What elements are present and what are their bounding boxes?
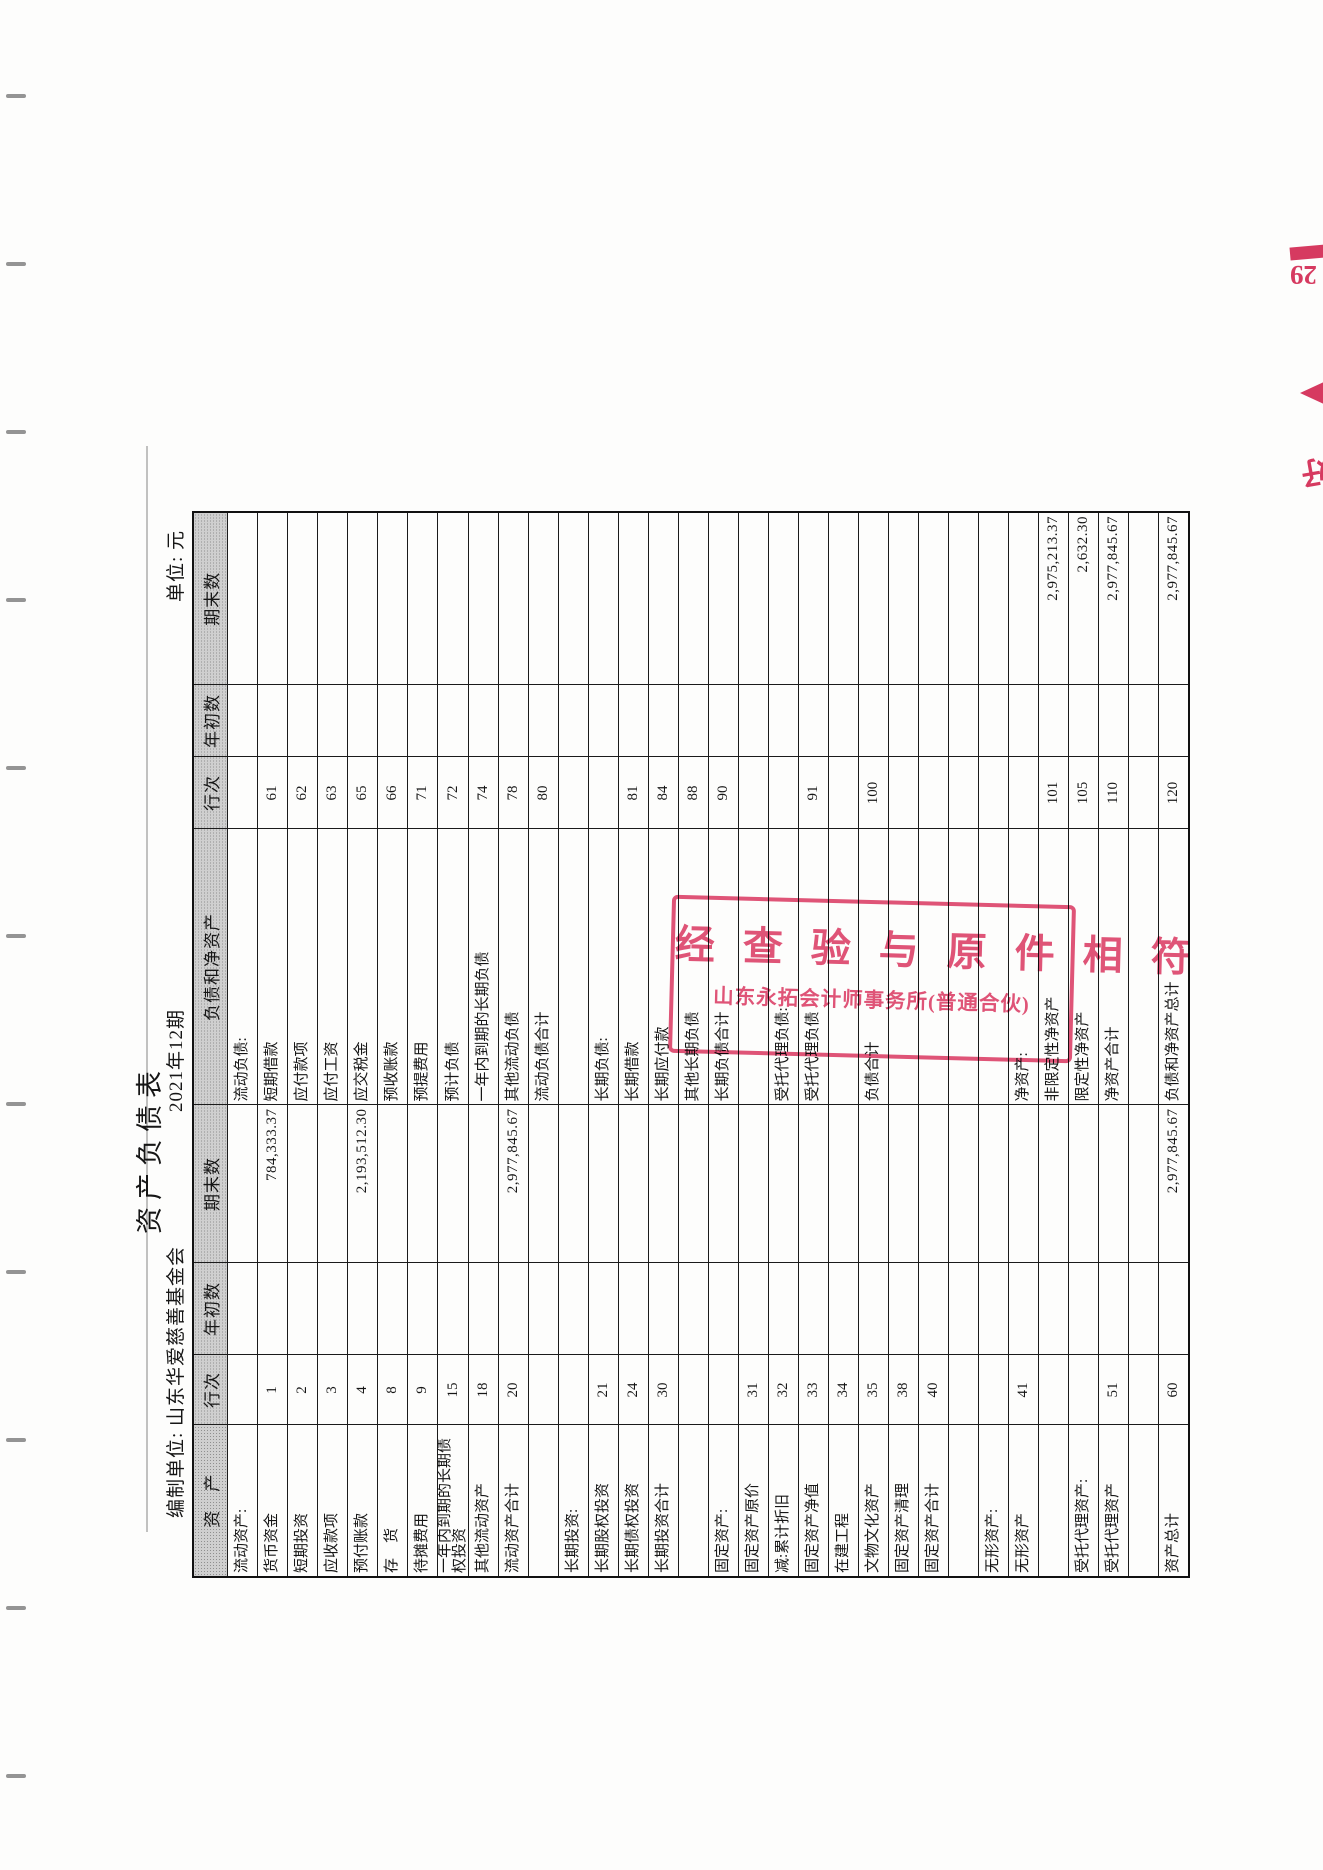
asset-lineno-cell: 24	[619, 1355, 649, 1425]
asset-beginning-cell	[318, 1263, 348, 1355]
asset-ending-cell	[919, 1105, 949, 1263]
liability-ending-cell	[499, 512, 529, 685]
binder-mark	[6, 1102, 26, 1106]
asset-ending-cell	[709, 1105, 739, 1263]
liability-lineno-cell: 63	[318, 757, 348, 829]
liability-lineno-cell: 71	[408, 757, 438, 829]
liability-lineno-cell: 80	[529, 757, 559, 829]
liability-beginning-cell	[889, 685, 919, 757]
liability-lineno-cell: 91	[799, 757, 829, 829]
asset-name-cell: 固定资产清理	[889, 1425, 919, 1577]
liability-lineno-cell	[228, 757, 258, 829]
asset-ending-cell	[559, 1105, 589, 1263]
asset-beginning-cell	[408, 1263, 438, 1355]
stamp-text-verified: 经 查 验 与 原 件 相 符	[674, 912, 1071, 980]
asset-beginning-cell	[889, 1263, 919, 1355]
asset-lineno-cell	[1129, 1355, 1159, 1425]
asset-beginning-cell	[499, 1263, 529, 1355]
liability-lineno-cell: 101	[1039, 757, 1069, 829]
asset-beginning-cell	[1069, 1263, 1099, 1355]
asset-ending-cell: 2,977,845.67	[499, 1105, 529, 1263]
asset-beginning-cell	[1009, 1263, 1039, 1355]
liability-name-cell: 长期负债:	[589, 829, 619, 1105]
asset-name-cell: 存 货	[378, 1425, 408, 1577]
header-liability-beginning: 年初数	[193, 685, 228, 757]
liability-beginning-cell	[979, 685, 1009, 757]
liability-beginning-cell	[348, 685, 378, 757]
liability-ending-cell	[679, 512, 709, 685]
header-asset: 资 产	[193, 1425, 228, 1577]
table-row: 流动资产:流动负债:	[228, 512, 258, 1577]
scanned-balance-sheet-page: { "document": { "title": "资产负债表", "org_l…	[0, 0, 1323, 1870]
liability-beginning-cell	[1039, 685, 1069, 757]
asset-lineno-cell: 30	[649, 1355, 679, 1425]
liability-ending-cell	[529, 512, 559, 685]
asset-name-cell: 长期投资:	[559, 1425, 589, 1577]
liability-lineno-cell	[889, 757, 919, 829]
asset-lineno-cell: 34	[829, 1355, 859, 1425]
asset-lineno-cell: 35	[859, 1355, 889, 1425]
asset-name-cell: 货币资金	[258, 1425, 288, 1577]
asset-beginning-cell	[649, 1263, 679, 1355]
asset-lineno-cell: 38	[889, 1355, 919, 1425]
asset-lineno-cell: 8	[378, 1355, 408, 1425]
liability-beginning-cell	[799, 685, 829, 757]
asset-ending-cell	[649, 1105, 679, 1263]
header-asset-ending: 期末数	[193, 1105, 228, 1263]
asset-lineno-cell	[709, 1355, 739, 1425]
table-row: 资产总计602,977,845.67负债和净资产总计1202,977,845.6…	[1159, 512, 1190, 1577]
liability-ending-cell	[1009, 512, 1039, 685]
asset-lineno-cell: 33	[799, 1355, 829, 1425]
liability-lineno-cell: 72	[438, 757, 469, 829]
binder-mark	[6, 766, 26, 770]
asset-ending-cell	[949, 1105, 979, 1263]
asset-name-cell: 固定资产合计	[919, 1425, 949, 1577]
asset-beginning-cell	[529, 1263, 559, 1355]
unit-label: 单位: 元	[161, 530, 188, 602]
asset-ending-cell: 2,977,845.67	[1159, 1105, 1190, 1263]
asset-name-cell: 长期债权投资	[619, 1425, 649, 1577]
asset-name-cell: 待摊费用	[408, 1425, 438, 1577]
liability-ending-cell: 2,975,213.37	[1039, 512, 1069, 685]
liability-ending-cell	[949, 512, 979, 685]
asset-beginning-cell	[1099, 1263, 1129, 1355]
liability-lineno-cell: 65	[348, 757, 378, 829]
liability-beginning-cell	[288, 685, 318, 757]
asset-ending-cell	[1129, 1105, 1159, 1263]
asset-lineno-cell	[979, 1355, 1009, 1425]
asset-ending-cell	[1039, 1105, 1069, 1263]
liability-beginning-cell	[679, 685, 709, 757]
asset-ending-cell	[889, 1105, 919, 1263]
asset-ending-cell	[1009, 1105, 1039, 1263]
table-row: 一年内到期的长期债权投资15预计负债72	[438, 512, 469, 1577]
liability-ending-cell	[829, 512, 859, 685]
liability-lineno-cell: 120	[1159, 757, 1190, 829]
asset-ending-cell	[739, 1105, 769, 1263]
liability-beginning-cell	[919, 685, 949, 757]
asset-ending-cell	[529, 1105, 559, 1263]
liability-beginning-cell	[438, 685, 469, 757]
asset-lineno-cell	[1069, 1355, 1099, 1425]
liability-ending-cell	[619, 512, 649, 685]
liability-ending-cell: 2,632.30	[1069, 512, 1099, 685]
liability-ending-cell	[739, 512, 769, 685]
asset-lineno-cell: 3	[318, 1355, 348, 1425]
asset-ending-cell	[799, 1105, 829, 1263]
liability-beginning-cell	[1009, 685, 1039, 757]
liability-name-cell: 预收账款	[378, 829, 408, 1105]
binder-mark	[6, 94, 26, 98]
page-index-number: 29	[1290, 259, 1323, 290]
liability-beginning-cell	[739, 685, 769, 757]
liability-ending-cell	[1129, 512, 1159, 685]
binder-mark	[6, 1438, 26, 1442]
header-liability-ending: 期末数	[193, 512, 228, 685]
liability-ending-cell	[408, 512, 438, 685]
period-label: 2021年12期	[161, 1009, 188, 1112]
asset-name-cell: 预付账款	[348, 1425, 378, 1577]
asset-name-cell: 短期投资	[288, 1425, 318, 1577]
asset-ending-cell	[829, 1105, 859, 1263]
asset-beginning-cell	[589, 1263, 619, 1355]
liability-lineno-cell	[829, 757, 859, 829]
liability-ending-cell	[799, 512, 829, 685]
liability-ending-cell: 2,977,845.67	[1159, 512, 1190, 685]
liability-lineno-cell	[919, 757, 949, 829]
asset-name-cell: 无形资产:	[979, 1425, 1009, 1577]
asset-beginning-cell	[1129, 1263, 1159, 1355]
asset-ending-cell: 784,333.37	[258, 1105, 288, 1263]
asset-ending-cell	[228, 1105, 258, 1263]
asset-ending-cell	[619, 1105, 649, 1263]
asset-beginning-cell	[378, 1263, 408, 1355]
liability-lineno-cell: 61	[258, 757, 288, 829]
asset-lineno-cell	[679, 1355, 709, 1425]
liability-ending-cell	[889, 512, 919, 685]
asset-beginning-cell	[559, 1263, 589, 1355]
liability-ending-cell	[288, 512, 318, 685]
asset-name-cell: 其他流动资产	[469, 1425, 499, 1577]
table-row: 流动负债合计80	[529, 512, 559, 1577]
liability-lineno-cell: 84	[649, 757, 679, 829]
asset-beginning-cell	[829, 1263, 859, 1355]
table-row: 待摊费用9预提费用71	[408, 512, 438, 1577]
liability-name-cell: 应交税金	[348, 829, 378, 1105]
liability-ending-cell	[649, 512, 679, 685]
liability-lineno-cell: 81	[619, 757, 649, 829]
asset-lineno-cell	[1039, 1355, 1069, 1425]
table-row: 存 货8预收账款66	[378, 512, 408, 1577]
asset-ending-cell	[769, 1105, 799, 1263]
liability-ending-cell	[469, 512, 499, 685]
liability-ending-cell	[859, 512, 889, 685]
asset-beginning-cell	[799, 1263, 829, 1355]
asset-name-cell: 长期股权投资	[589, 1425, 619, 1577]
asset-ending-cell	[679, 1105, 709, 1263]
asset-lineno-cell: 40	[919, 1355, 949, 1425]
liability-name-cell: 预提费用	[408, 829, 438, 1105]
liability-beginning-cell	[829, 685, 859, 757]
asset-ending-cell: 2,193,512.30	[348, 1105, 378, 1263]
liability-ending-cell	[769, 512, 799, 685]
liability-ending-cell	[258, 512, 288, 685]
liability-lineno-cell	[769, 757, 799, 829]
asset-beginning-cell	[949, 1263, 979, 1355]
liability-lineno-cell: 88	[679, 757, 709, 829]
asset-name-cell: 流动资产合计	[499, 1425, 529, 1577]
liability-lineno-cell	[1129, 757, 1159, 829]
asset-beginning-cell	[228, 1263, 258, 1355]
liability-lineno-cell: 66	[378, 757, 408, 829]
liability-name-cell: 流动负债:	[228, 829, 258, 1105]
liability-name-cell: 短期借款	[258, 829, 288, 1105]
liability-name-cell: 应付款项	[288, 829, 318, 1105]
liability-beginning-cell	[559, 685, 589, 757]
liability-beginning-cell	[1129, 685, 1159, 757]
liability-beginning-cell	[619, 685, 649, 757]
table-row: 短期投资2应付款项62	[288, 512, 318, 1577]
asset-lineno-cell: 60	[1159, 1355, 1190, 1425]
liability-beginning-cell	[709, 685, 739, 757]
liability-ending-cell	[919, 512, 949, 685]
org-label: 编制单位: 山东华爱慈善基金会	[161, 1246, 188, 1518]
binder-mark	[6, 262, 26, 266]
liability-lineno-cell	[979, 757, 1009, 829]
liability-ending-cell	[348, 512, 378, 685]
liability-ending-cell	[979, 512, 1009, 685]
liability-ending-cell: 2,977,845.67	[1099, 512, 1129, 685]
asset-ending-cell	[318, 1105, 348, 1263]
liability-beginning-cell	[949, 685, 979, 757]
liability-lineno-cell	[949, 757, 979, 829]
liability-beginning-cell	[228, 685, 258, 757]
liability-lineno-cell: 100	[859, 757, 889, 829]
audit-stamp: 经 查 验 与 原 件 相 符 山东永拓会计师事务所(普通合伙)	[668, 895, 1076, 1064]
asset-name-cell	[1039, 1425, 1069, 1577]
table-row: 长期股权投资21长期负债:	[589, 512, 619, 1577]
asset-name-cell: 固定资产净值	[799, 1425, 829, 1577]
liability-name-cell: 预计负债	[438, 829, 469, 1105]
asset-lineno-cell: 20	[499, 1355, 529, 1425]
asset-lineno-cell: 2	[288, 1355, 318, 1425]
asset-beginning-cell	[919, 1263, 949, 1355]
header-asset-beginning: 年初数	[193, 1263, 228, 1355]
liability-ending-cell	[378, 512, 408, 685]
liability-name-cell: 流动负债合计	[529, 829, 559, 1105]
asset-lineno-cell	[559, 1355, 589, 1425]
asset-name-cell: 受托代理资产	[1099, 1425, 1129, 1577]
asset-lineno-cell	[949, 1355, 979, 1425]
asset-name-cell	[949, 1425, 979, 1577]
asset-beginning-cell	[679, 1263, 709, 1355]
asset-lineno-cell	[529, 1355, 559, 1425]
asset-beginning-cell	[739, 1263, 769, 1355]
asset-beginning-cell	[619, 1263, 649, 1355]
liability-beginning-cell	[408, 685, 438, 757]
table-row: 货币资金1784,333.37短期借款61	[258, 512, 288, 1577]
table-row	[1129, 512, 1159, 1577]
liability-beginning-cell	[1159, 685, 1190, 757]
table-row: 预付账款42,193,512.30应交税金65	[348, 512, 378, 1577]
asset-lineno-cell: 41	[1009, 1355, 1039, 1425]
asset-ending-cell	[979, 1105, 1009, 1263]
header-liability-lineno: 行次	[193, 757, 228, 829]
liability-ending-cell	[709, 512, 739, 685]
asset-name-cell: 无形资产	[1009, 1425, 1039, 1577]
asset-name-cell: 流动资产:	[228, 1425, 258, 1577]
liability-lineno-cell	[589, 757, 619, 829]
asset-ending-cell	[859, 1105, 889, 1263]
liability-lineno-cell	[559, 757, 589, 829]
asset-beginning-cell	[979, 1263, 1009, 1355]
binder-mark	[6, 598, 26, 602]
asset-lineno-cell: 15	[438, 1355, 469, 1425]
asset-name-cell: 一年内到期的长期债权投资	[438, 1425, 469, 1577]
binder-mark	[6, 1606, 26, 1610]
liability-name-cell	[559, 829, 589, 1105]
table-row: 流动资产合计202,977,845.67其他流动负债78	[499, 512, 529, 1577]
asset-lineno-cell: 32	[769, 1355, 799, 1425]
asset-beginning-cell	[859, 1263, 889, 1355]
asset-ending-cell	[378, 1105, 408, 1263]
asset-lineno-cell: 4	[348, 1355, 378, 1425]
page-index-tab: 29	[1290, 246, 1323, 290]
liability-beginning-cell	[859, 685, 889, 757]
asset-lineno-cell: 1	[258, 1355, 288, 1425]
photocopy-rule-line	[146, 446, 148, 1532]
liability-beginning-cell	[649, 685, 679, 757]
asset-name-cell: 应收款项	[318, 1425, 348, 1577]
binder-mark	[6, 1774, 26, 1778]
asset-beginning-cell	[1039, 1263, 1069, 1355]
asset-name-cell: 固定资产:	[709, 1425, 739, 1577]
stamp-text-firm: 山东永拓会计师事务所(普通合伙)	[673, 978, 1070, 1018]
liability-beginning-cell	[318, 685, 348, 757]
liability-ending-cell	[228, 512, 258, 685]
asset-ending-cell	[1099, 1105, 1129, 1263]
asset-name-cell: 在建工程	[829, 1425, 859, 1577]
left-arrow-mark	[1300, 381, 1323, 405]
asset-beginning-cell	[438, 1263, 469, 1355]
liability-lineno-cell: 62	[288, 757, 318, 829]
table-row: 长期投资:	[559, 512, 589, 1577]
asset-lineno-cell: 18	[469, 1355, 499, 1425]
liability-lineno-cell: 90	[709, 757, 739, 829]
asset-lineno-cell	[228, 1355, 258, 1425]
header-liability: 负债和净资产	[193, 829, 228, 1105]
table-row: 其他流动资产18一年内到期的长期负债74	[469, 512, 499, 1577]
asset-ending-cell	[288, 1105, 318, 1263]
liability-beginning-cell	[499, 685, 529, 757]
asset-name-cell	[679, 1425, 709, 1577]
liability-lineno-cell: 105	[1069, 757, 1099, 829]
liability-ending-cell	[589, 512, 619, 685]
asset-beginning-cell	[348, 1263, 378, 1355]
asset-beginning-cell	[709, 1263, 739, 1355]
liability-name-cell: 一年内到期的长期负债	[469, 829, 499, 1105]
asset-lineno-cell: 31	[739, 1355, 769, 1425]
liability-beginning-cell	[378, 685, 408, 757]
liability-beginning-cell	[258, 685, 288, 757]
asset-beginning-cell	[258, 1263, 288, 1355]
asset-ending-cell	[408, 1105, 438, 1263]
asset-beginning-cell	[288, 1263, 318, 1355]
asset-ending-cell	[469, 1105, 499, 1263]
asset-name-cell	[529, 1425, 559, 1577]
asset-name-cell: 资产总计	[1159, 1425, 1190, 1577]
liability-name-cell: 长期借款	[619, 829, 649, 1105]
liability-beginning-cell	[1069, 685, 1099, 757]
liability-beginning-cell	[469, 685, 499, 757]
liability-name-cell: 应付工资	[318, 829, 348, 1105]
liability-lineno-cell: 110	[1099, 757, 1129, 829]
asset-ending-cell	[438, 1105, 469, 1263]
asset-name-cell: 文物文化资产	[859, 1425, 889, 1577]
liability-name-cell: 其他流动负债	[499, 829, 529, 1105]
header-row: 资 产 行次 年初数 期末数 负债和净资产 行次 年初数 期末数	[193, 512, 228, 1577]
asset-ending-cell	[1069, 1105, 1099, 1263]
asset-ending-cell	[589, 1105, 619, 1263]
asset-name-cell: 减:累计折旧	[769, 1425, 799, 1577]
liability-ending-cell	[559, 512, 589, 685]
asset-lineno-cell: 51	[1099, 1355, 1129, 1425]
binder-mark	[6, 430, 26, 434]
asset-lineno-cell: 9	[408, 1355, 438, 1425]
liability-beginning-cell	[589, 685, 619, 757]
asset-name-cell	[1129, 1425, 1159, 1577]
table-row: 受托代理资产:限定性净资产1052,632.30	[1069, 512, 1099, 1577]
binder-mark	[6, 1270, 26, 1274]
liability-beginning-cell	[769, 685, 799, 757]
header-asset-lineno: 行次	[193, 1355, 228, 1425]
liability-beginning-cell	[529, 685, 559, 757]
table-row: 应收款项3应付工资63	[318, 512, 348, 1577]
asset-beginning-cell	[1159, 1263, 1190, 1355]
asset-beginning-cell	[769, 1263, 799, 1355]
liability-ending-cell	[318, 512, 348, 685]
liability-lineno-cell: 78	[499, 757, 529, 829]
binder-mark	[6, 934, 26, 938]
table-row: 长期债权投资24长期借款81	[619, 512, 649, 1577]
liability-lineno-cell	[739, 757, 769, 829]
asset-lineno-cell: 21	[589, 1355, 619, 1425]
liability-lineno-cell: 74	[469, 757, 499, 829]
liability-ending-cell	[438, 512, 469, 685]
asset-name-cell: 受托代理资产:	[1069, 1425, 1099, 1577]
liability-beginning-cell	[1099, 685, 1129, 757]
liability-lineno-cell	[1009, 757, 1039, 829]
asset-name-cell: 长期投资合计	[649, 1425, 679, 1577]
asset-name-cell: 固定资产原价	[739, 1425, 769, 1577]
asset-beginning-cell	[469, 1263, 499, 1355]
table-row: 受托代理资产51净资产合计1102,977,845.67	[1099, 512, 1129, 1577]
